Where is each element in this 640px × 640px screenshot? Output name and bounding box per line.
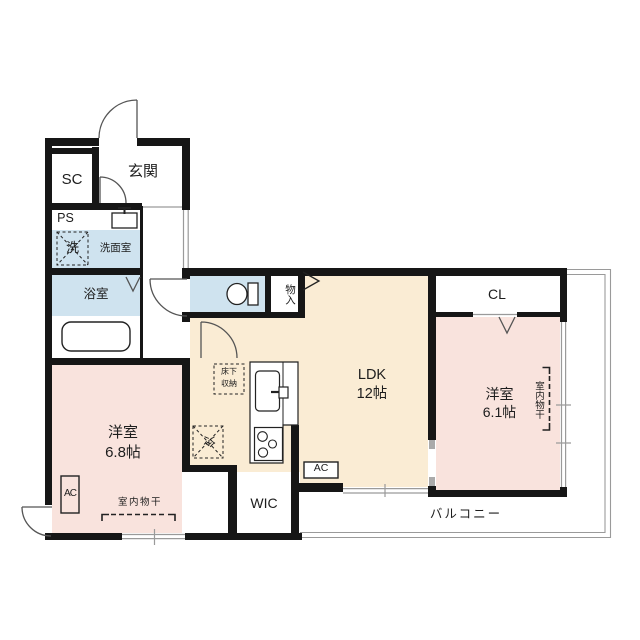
wic-label: WIC: [237, 494, 291, 512]
washing-machine-label: 洗: [57, 240, 88, 257]
bedroom-west-exterior-door: [22, 507, 52, 536]
floorplan-canvas: [0, 0, 640, 640]
bedroom-west-size: 6.8帖: [84, 443, 162, 463]
kitchen-faucet-icon: [279, 387, 288, 398]
indoor-drying-east-label: 室内物干: [530, 368, 543, 432]
ldk-floor-upper: [305, 276, 428, 318]
genkan-label: 玄関: [105, 162, 181, 182]
ldk-size: 12帖: [336, 385, 408, 404]
toilet-door: [150, 279, 187, 316]
floorplan: 玄関 SC PS 洗 洗面室 浴室 物入 LDK 12帖 CL 洋室 6.1帖 …: [0, 0, 640, 640]
thin-partitions: [140, 206, 182, 358]
toilet-icon: [227, 283, 258, 305]
bedroom-west-name: 洋室: [84, 423, 162, 443]
entrance-door: [99, 100, 137, 138]
door-jambs: [429, 440, 435, 486]
underfloor-storage-label: 床下 収納: [214, 366, 244, 391]
vanity-sink-icon: [112, 208, 137, 228]
ldk-name: LDK: [336, 366, 408, 385]
ldk-label: LDK 12帖: [336, 366, 408, 404]
indoor-drying-west-label: 室内物干: [97, 497, 183, 509]
washroom-label: 洗面室: [88, 242, 143, 256]
bathtub-icon: [62, 322, 130, 351]
bedroom-east-label: 洋室 6.1帖: [461, 385, 538, 421]
underfloor-storage-line1: 床下: [214, 366, 244, 378]
ac-ldk-label: AC: [304, 462, 338, 476]
bedroom-east-name: 洋室: [461, 385, 538, 403]
ac-bedroom-west-label: AC: [59, 487, 81, 500]
bathroom-label: 浴室: [69, 286, 123, 302]
corridor-partition: [140, 206, 143, 358]
storage-label: 物入: [276, 277, 295, 311]
pipe-space-label: PS: [53, 210, 78, 226]
underfloor-storage-line2: 収納: [214, 378, 244, 390]
bedroom-west-label: 洋室 6.8帖: [84, 423, 162, 462]
refrigerator-label: 冷: [193, 434, 223, 450]
closet-label: CL: [469, 285, 525, 303]
shoe-closet-label: SC: [52, 170, 92, 190]
refrigerator-char: 冷: [200, 436, 216, 448]
balcony-label: バルコニー: [411, 506, 521, 522]
bedroom-east-size: 6.1帖: [461, 403, 538, 421]
